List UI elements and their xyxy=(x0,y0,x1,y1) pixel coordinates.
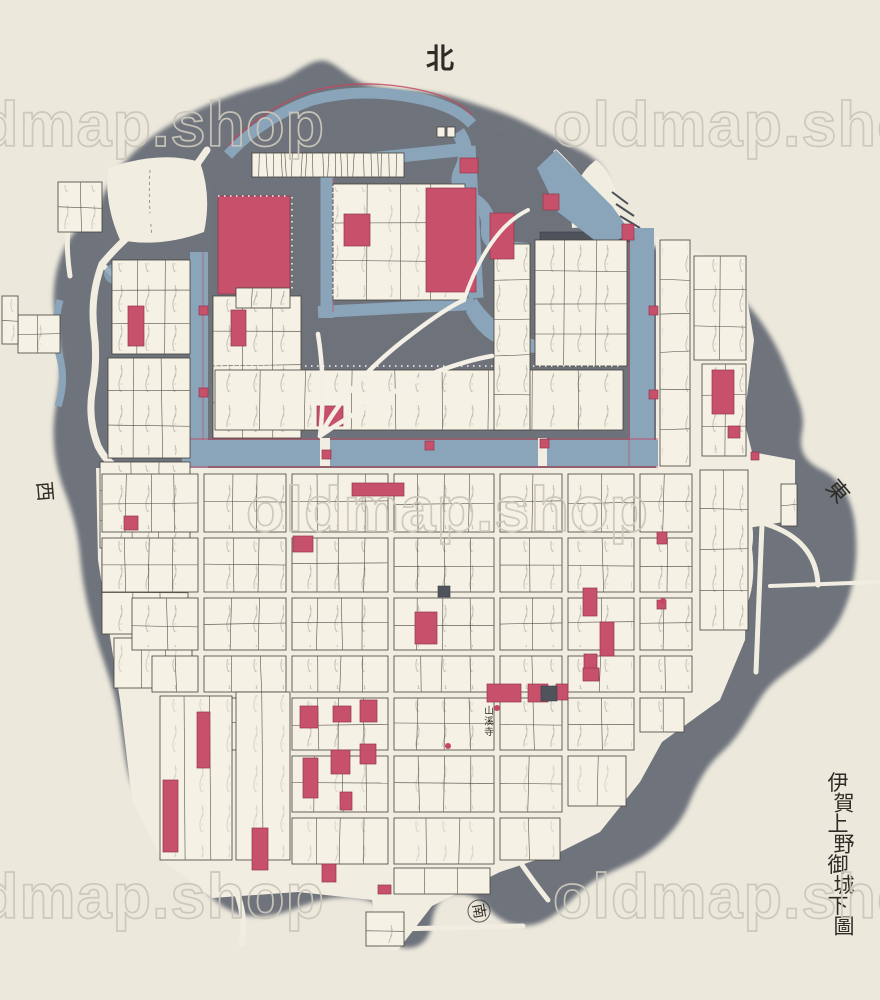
red-building xyxy=(728,426,740,438)
red-building xyxy=(583,668,599,681)
red-building xyxy=(163,780,178,852)
plot-block xyxy=(58,182,102,232)
plot-block xyxy=(781,484,797,526)
plot-block xyxy=(568,656,634,692)
plot-block xyxy=(568,538,634,592)
plot-block xyxy=(108,358,190,458)
watermark-bottom-left: oldmap.shop xyxy=(0,862,325,932)
red-marker-dot xyxy=(494,705,500,711)
plot-block xyxy=(640,698,684,732)
plot-block xyxy=(394,598,494,650)
red-building xyxy=(199,388,208,397)
plot-block xyxy=(366,912,404,946)
red-building xyxy=(197,712,210,768)
temple-label-char: 山 xyxy=(484,706,494,717)
plot-block xyxy=(568,756,626,806)
red-building xyxy=(649,390,658,399)
svg-text:南: 南 xyxy=(469,902,489,920)
plot-block xyxy=(640,656,692,692)
plot-block xyxy=(292,656,388,692)
dark-building xyxy=(438,586,450,597)
temple-label: 山溪寺 xyxy=(484,706,494,738)
plot-block xyxy=(102,538,198,592)
red-building xyxy=(543,194,559,210)
red-building xyxy=(540,439,549,448)
plot-block xyxy=(204,538,286,592)
red-building xyxy=(487,684,521,702)
red-marker-dot xyxy=(445,743,451,749)
red-building xyxy=(303,758,318,798)
red-building xyxy=(712,370,734,414)
temple-label-char: 溪 xyxy=(484,716,494,728)
east-moat xyxy=(630,228,654,466)
red-building xyxy=(378,885,391,894)
west-moat xyxy=(190,252,208,468)
old-map-page: 北 東 西 南 伊賀上野御城下圖 山溪寺 oldmap.shop oldmap.… xyxy=(0,0,880,1000)
plot-block xyxy=(394,538,494,592)
watermark-top-left: oldmap.shop xyxy=(0,90,325,160)
plot-block xyxy=(394,818,494,864)
plot-block xyxy=(394,698,494,750)
red-building xyxy=(751,452,759,460)
plot-block xyxy=(500,818,560,860)
plot-block xyxy=(500,598,562,650)
south-moat xyxy=(182,440,658,466)
red-building xyxy=(231,310,246,346)
red-building xyxy=(124,516,138,530)
compass-north: 北 xyxy=(426,42,454,75)
plot-block xyxy=(500,756,562,812)
red-building xyxy=(128,306,144,346)
plot-block xyxy=(102,474,198,532)
red-building xyxy=(460,158,478,173)
plot-block xyxy=(132,598,198,650)
red-building xyxy=(199,306,208,315)
plot-block xyxy=(394,656,494,692)
red-building xyxy=(218,196,290,294)
red-building xyxy=(340,792,352,810)
watermark-top-right: oldmap.shop xyxy=(553,90,880,160)
red-building xyxy=(649,306,658,315)
plot-block xyxy=(204,598,286,650)
red-building xyxy=(360,744,376,764)
plot-block xyxy=(18,315,60,353)
plot-block xyxy=(500,698,562,750)
plot-block xyxy=(660,240,690,466)
plot-block xyxy=(700,470,748,630)
red-building xyxy=(300,706,318,728)
red-building xyxy=(344,214,370,246)
red-building xyxy=(322,450,331,459)
compass-west: 西 xyxy=(32,480,58,502)
red-building xyxy=(657,532,667,544)
plot-block xyxy=(394,756,494,812)
red-building xyxy=(622,224,634,240)
red-building xyxy=(556,684,568,700)
red-marker-dot xyxy=(660,598,666,604)
plot-block xyxy=(694,256,746,360)
plot-block xyxy=(2,296,18,344)
plot-block xyxy=(535,240,627,366)
red-building xyxy=(360,700,377,722)
red-building xyxy=(333,706,351,722)
plot-block xyxy=(494,244,530,430)
plot-block xyxy=(112,260,190,354)
plot-block xyxy=(394,868,490,894)
plot-block xyxy=(292,598,388,650)
dark-building xyxy=(541,686,557,701)
plot-block xyxy=(292,818,388,864)
red-building xyxy=(426,188,476,292)
map-canvas: 北 東 西 南 伊賀上野御城下圖 山溪寺 oldmap.shop oldmap.… xyxy=(0,0,880,1000)
temple-label-char: 寺 xyxy=(484,727,494,738)
plot-block xyxy=(152,656,198,692)
watermark-center: oldmap.shop xyxy=(246,475,649,545)
plot-block xyxy=(204,656,286,692)
red-building xyxy=(600,622,614,656)
plot-block xyxy=(236,288,290,308)
red-building xyxy=(415,612,437,644)
red-building xyxy=(331,750,350,774)
watermark-bottom-right: oldmap.shop xyxy=(553,862,880,932)
harbor-pier xyxy=(394,926,523,929)
plot-block xyxy=(640,538,692,592)
plot-block xyxy=(568,698,634,750)
red-building xyxy=(425,441,434,450)
red-building xyxy=(583,588,597,616)
plot-block xyxy=(500,538,562,592)
